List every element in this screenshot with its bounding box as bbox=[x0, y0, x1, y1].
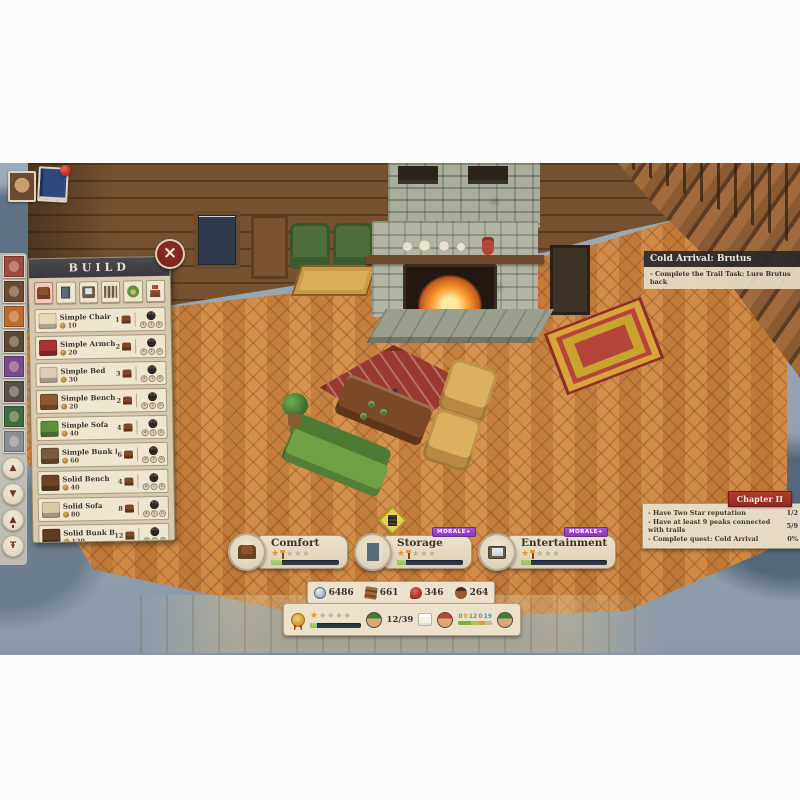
guest-face-icon bbox=[366, 612, 382, 628]
item-comfort-value: 2 bbox=[115, 343, 120, 351]
star-icon: ★ bbox=[552, 550, 559, 558]
divider bbox=[137, 474, 138, 488]
build-categories bbox=[29, 276, 170, 307]
resources-bar: 6486661346264 bbox=[307, 581, 495, 604]
star-icon: ★ bbox=[310, 612, 318, 621]
item-stats: 6410 bbox=[117, 445, 165, 463]
sidebar-button-tree[interactable]: ▲ bbox=[2, 509, 24, 531]
simple-sofa-thumbnail bbox=[40, 421, 58, 437]
star-icon: ★ bbox=[294, 550, 301, 558]
comfort-icon bbox=[238, 545, 256, 559]
status-bar: ★★★★★ 12/39 0012019 bbox=[283, 603, 521, 636]
comfort-icon bbox=[125, 531, 134, 539]
guest-counters: 0012019 bbox=[458, 614, 492, 625]
item-name: Solid Bench bbox=[62, 473, 118, 483]
resource-value: 264 bbox=[470, 588, 489, 598]
craft-dot: 0 bbox=[158, 428, 165, 435]
item-info: Solid Sofa80 bbox=[63, 500, 119, 518]
craft-badge: 410 bbox=[143, 526, 166, 543]
chimney-flue bbox=[398, 166, 438, 184]
item-comfort-value: 2 bbox=[116, 397, 121, 405]
electronics-icon bbox=[82, 286, 95, 298]
item-info: Simple Chair10 bbox=[59, 311, 115, 329]
item-stats: 2410 bbox=[116, 391, 164, 409]
item-price: 80 bbox=[63, 509, 119, 518]
planks-icon bbox=[364, 586, 378, 600]
resource-acorns: 264 bbox=[455, 587, 489, 599]
tofu-cube-icon bbox=[418, 613, 432, 626]
craft-dot: 0 bbox=[156, 347, 163, 354]
table-cup bbox=[380, 409, 387, 416]
dark-wardrobe bbox=[550, 245, 590, 315]
item-price-value: 120 bbox=[71, 537, 85, 543]
item-info: Simple Armchair20 bbox=[60, 338, 116, 356]
craft-dot: 4 bbox=[142, 429, 149, 436]
item-name: Simple Armchair bbox=[60, 338, 116, 348]
reputation-rating: ★★★★★ bbox=[310, 612, 361, 628]
craft-dot: 4 bbox=[143, 510, 150, 517]
craft-dot: 4 bbox=[142, 456, 149, 463]
craft-badge: 410 bbox=[140, 364, 163, 381]
item-price-value: 40 bbox=[70, 429, 79, 437]
craft-dot: 0 bbox=[159, 509, 166, 516]
reputation-progress bbox=[310, 623, 361, 628]
craft-dot: 4 bbox=[142, 483, 149, 490]
shield-icon bbox=[4, 406, 24, 427]
notification-dot bbox=[60, 165, 71, 176]
medal-icon bbox=[291, 613, 305, 627]
build-item-solid-sofa[interactable]: Solid Sofa808410 bbox=[38, 496, 169, 522]
resource-value: 346 bbox=[425, 588, 444, 598]
item-price-value: 80 bbox=[71, 510, 80, 518]
item-name: Solid Bunk Bed bbox=[63, 527, 114, 537]
divider bbox=[135, 366, 136, 380]
coin-icon bbox=[61, 376, 67, 382]
objective-progress: 0% bbox=[787, 535, 798, 543]
craft-dot: 1 bbox=[148, 321, 155, 328]
objective-text: - Complete quest: Cold Arrival bbox=[648, 535, 783, 543]
comfort-icon bbox=[122, 369, 131, 377]
comfort-icon bbox=[124, 450, 133, 458]
table-cup bbox=[360, 413, 367, 420]
solid-sofa-thumbnail bbox=[42, 502, 60, 518]
craft-badge: 410 bbox=[143, 499, 166, 516]
food-icon bbox=[410, 587, 422, 599]
resource-food: 346 bbox=[410, 587, 444, 599]
purple-bear-icon bbox=[4, 356, 24, 377]
hearth-stone bbox=[366, 309, 554, 343]
stat-progress bbox=[271, 560, 339, 565]
solid-bunk-bed-thumbnail bbox=[42, 529, 60, 543]
tree-icon: ▲ bbox=[10, 516, 17, 525]
bear-album-stamp[interactable] bbox=[8, 171, 36, 202]
paw-icon bbox=[149, 446, 158, 455]
chapter-objective: - Complete quest: Cold Arrival0% bbox=[648, 535, 798, 543]
item-info: Simple Bed30 bbox=[60, 365, 116, 383]
simple-bed-thumbnail bbox=[39, 367, 57, 383]
entertainment-circle bbox=[478, 533, 516, 571]
star-icon: ★ bbox=[420, 550, 427, 558]
divider bbox=[134, 312, 135, 326]
star-icon: ★ bbox=[544, 550, 551, 558]
resource-coins: 6486 bbox=[314, 587, 354, 599]
item-info: Simple Bench20 bbox=[61, 392, 117, 410]
mantel-plate bbox=[402, 241, 413, 252]
plants-icon bbox=[149, 285, 162, 297]
build-item-simple-bunk-bed[interactable]: Simple Bunk Bed606410 bbox=[37, 442, 168, 468]
sidebar-button-scroll-down[interactable]: ▼ bbox=[2, 483, 24, 505]
guest-face-red-icon bbox=[437, 612, 453, 628]
paw-icon bbox=[150, 500, 159, 509]
stat-body: Entertainment★★★★ bbox=[508, 535, 616, 568]
item-price: 20 bbox=[60, 347, 116, 356]
star-icon: ★ bbox=[335, 612, 342, 620]
sidebar-button-trail-sign[interactable]: Ŧ bbox=[2, 535, 24, 557]
coin-icon bbox=[62, 457, 68, 463]
shelf bbox=[251, 215, 288, 279]
craft-badge: 410 bbox=[141, 391, 164, 408]
item-info: Solid Bunk Bed120 bbox=[63, 527, 114, 543]
item-price: 40 bbox=[62, 428, 118, 437]
category-fence[interactable] bbox=[101, 281, 121, 303]
item-info: Simple Bunk Bed60 bbox=[62, 446, 118, 464]
mantel-plate bbox=[418, 239, 431, 252]
climber-icon bbox=[280, 550, 285, 559]
craft-dots: 410 bbox=[142, 428, 165, 435]
cabin-icon bbox=[4, 381, 24, 402]
craft-dot: 1 bbox=[149, 402, 156, 409]
star-icon: ★ bbox=[521, 550, 529, 559]
build-item-solid-bunk-bed[interactable]: Solid Bunk Bed12012410 bbox=[38, 523, 169, 543]
sidebar-stamp-purple-bear[interactable] bbox=[3, 355, 25, 378]
screenshot-frame: ▲▼▲Ŧ BUILD Simple Chair101410Simple Armc… bbox=[0, 0, 800, 800]
counter-value: 12 bbox=[469, 614, 477, 620]
item-name: Simple Chair bbox=[59, 311, 115, 321]
sidebar-stamp-red-banner[interactable] bbox=[3, 255, 25, 278]
craft-dot: 1 bbox=[148, 348, 155, 355]
star-icon: ★ bbox=[319, 612, 326, 620]
coin-icon bbox=[62, 430, 68, 436]
chapter-title: Chapter II bbox=[728, 491, 792, 507]
quest-title: Cold Arrival: Brutus bbox=[644, 251, 800, 267]
craft-dot: 0 bbox=[158, 482, 165, 489]
divider bbox=[137, 447, 138, 461]
star-icon: ★ bbox=[327, 612, 334, 620]
build-item-list: Simple Chair101410Simple Armchair202410S… bbox=[29, 305, 175, 543]
craft-dot: 4 bbox=[141, 402, 148, 409]
coin-icon bbox=[60, 349, 66, 355]
green-armchair bbox=[290, 223, 330, 269]
counter-segment bbox=[485, 621, 492, 625]
stat-progress-fill bbox=[521, 560, 531, 565]
craft-dot: 0 bbox=[157, 401, 164, 408]
stat-progress-fill bbox=[397, 560, 406, 565]
sidebar-stamp-bear-head[interactable] bbox=[3, 280, 25, 303]
star-icon: ★ bbox=[536, 550, 543, 558]
star-icon: ★ bbox=[412, 550, 419, 558]
item-price-value: 40 bbox=[70, 483, 79, 491]
divider bbox=[138, 528, 139, 542]
craft-badge: 410 bbox=[139, 310, 162, 327]
fireplace-mantel bbox=[366, 255, 544, 264]
stat-bar-storage[interactable]: Storage★★★★MORALE+ bbox=[354, 534, 472, 570]
resource-value: 661 bbox=[380, 588, 399, 598]
morale-badge: MORALE+ bbox=[432, 527, 476, 537]
item-stats: 12410 bbox=[114, 526, 166, 543]
ranger-icon bbox=[4, 331, 24, 352]
build-item-simple-chair[interactable]: Simple Chair101410 bbox=[34, 307, 165, 333]
climber-icon bbox=[406, 550, 411, 559]
resource-value: 6486 bbox=[329, 588, 354, 598]
craft-dot: 1 bbox=[150, 429, 157, 436]
item-comfort-value: 8 bbox=[118, 505, 123, 513]
item-stats: 4410 bbox=[117, 418, 165, 436]
scroll-down-icon: ▼ bbox=[10, 490, 17, 499]
quest-banner[interactable]: Cold Arrival: Brutus - Complete the Trai… bbox=[644, 251, 800, 289]
counter-value: 19 bbox=[484, 614, 492, 620]
craft-dot: 0 bbox=[157, 374, 164, 381]
entertainment-icon bbox=[488, 546, 506, 559]
sidebar-buttons: ▲▼▲Ŧ bbox=[0, 457, 27, 557]
acorns-icon bbox=[455, 587, 467, 599]
craft-badge: 410 bbox=[142, 445, 165, 462]
comfort-icon bbox=[122, 342, 131, 350]
simple-chair-thumbnail bbox=[38, 313, 56, 329]
category-seating[interactable] bbox=[34, 282, 54, 304]
coin-icon bbox=[63, 538, 69, 543]
build-item-simple-bed[interactable]: Simple Bed303410 bbox=[35, 361, 166, 387]
red-vase bbox=[482, 237, 494, 255]
coin-icon bbox=[62, 484, 68, 490]
trail-sign-icon: Ŧ bbox=[10, 542, 16, 551]
item-stats: 1410 bbox=[115, 310, 163, 328]
simple-bench-thumbnail bbox=[40, 394, 58, 410]
objective-progress: 5/9 bbox=[787, 522, 798, 530]
paw-icon bbox=[148, 419, 157, 428]
counter-segment bbox=[471, 621, 478, 625]
counter-segments bbox=[458, 621, 492, 625]
craft-dots: 410 bbox=[143, 509, 166, 516]
craft-dots: 410 bbox=[141, 401, 164, 408]
item-price-value: 10 bbox=[68, 321, 77, 329]
resource-planks: 661 bbox=[365, 587, 399, 599]
craft-badge: 410 bbox=[141, 418, 164, 435]
paw-icon bbox=[147, 365, 156, 374]
item-stats: 8410 bbox=[118, 499, 166, 517]
game-scene: ▲▼▲Ŧ BUILD Simple Chair101410Simple Armc… bbox=[0, 163, 800, 655]
sidebar-strip: ▲▼▲Ŧ bbox=[0, 253, 27, 565]
build-item-simple-armchair[interactable]: Simple Armchair202410 bbox=[35, 334, 166, 360]
craft-dots: 410 bbox=[142, 482, 165, 489]
star-icon: ★ bbox=[428, 550, 435, 558]
stat-progress bbox=[521, 560, 607, 565]
paw-icon bbox=[146, 311, 155, 320]
star-icon: ★ bbox=[286, 550, 293, 558]
category-electronics[interactable] bbox=[79, 281, 99, 303]
item-comfort-value: 1 bbox=[115, 316, 120, 324]
star-icon: ★ bbox=[302, 550, 309, 558]
bear-head-icon bbox=[4, 281, 24, 302]
comfort-icon bbox=[122, 315, 131, 323]
item-price: 30 bbox=[61, 374, 117, 383]
craft-dot: 0 bbox=[158, 455, 165, 462]
item-stats: 3410 bbox=[116, 364, 164, 382]
objective-text: - Have Two Star reputation bbox=[648, 509, 783, 517]
counter-value: 0 bbox=[478, 614, 482, 620]
sidebar-stamp-ranger[interactable] bbox=[3, 330, 25, 353]
counter-value: 0 bbox=[458, 614, 462, 620]
coin-icon bbox=[61, 403, 67, 409]
item-comfort-value: 4 bbox=[118, 478, 123, 486]
item-price-value: 20 bbox=[68, 348, 77, 356]
fire bbox=[418, 275, 482, 311]
craft-dot: 4 bbox=[140, 321, 147, 328]
sidebar-stamp-cabin[interactable] bbox=[3, 380, 25, 403]
craft-dot: 4 bbox=[140, 348, 147, 355]
morale-badge: MORALE+ bbox=[564, 527, 608, 537]
build-item-simple-bench[interactable]: Simple Bench202410 bbox=[36, 388, 167, 414]
guest-face-icon bbox=[497, 612, 513, 628]
category-decor-head[interactable] bbox=[123, 280, 143, 302]
comfort-icon bbox=[124, 477, 133, 485]
coin-icon bbox=[60, 322, 66, 328]
item-price-value: 20 bbox=[69, 402, 78, 410]
craft-dots: 410 bbox=[142, 455, 165, 462]
craft-dots: 410 bbox=[140, 320, 163, 327]
bear-icon bbox=[10, 173, 34, 200]
chapter-objective: - Have Two Star reputation1/2 bbox=[648, 509, 798, 517]
paw-icon bbox=[150, 527, 159, 536]
storage-icon bbox=[367, 543, 379, 561]
divider bbox=[138, 501, 139, 515]
potted-plant bbox=[280, 393, 310, 429]
stat-body: Storage★★★★ bbox=[384, 535, 472, 568]
paw-icon bbox=[147, 338, 156, 347]
item-comfort-value: 3 bbox=[116, 370, 121, 378]
simple-bunk-bed-thumbnail bbox=[41, 448, 59, 464]
sidebar-stamp-watchtower[interactable] bbox=[3, 430, 25, 453]
craft-dots: 410 bbox=[141, 374, 164, 381]
item-price: 20 bbox=[61, 401, 117, 410]
craft-dots: 410 bbox=[140, 347, 163, 354]
sidebar-button-scroll-up[interactable]: ▲ bbox=[2, 457, 24, 479]
stat-label: Comfort bbox=[271, 538, 339, 549]
craft-dot: 1 bbox=[151, 510, 158, 517]
solid-bench-thumbnail bbox=[41, 475, 59, 491]
counter-segment bbox=[458, 621, 471, 625]
stat-label: Entertainment bbox=[521, 538, 607, 549]
craft-dot: 1 bbox=[149, 375, 156, 382]
comfort-circle bbox=[228, 533, 266, 571]
item-info: Solid Bench40 bbox=[62, 473, 118, 491]
build-item-simple-sofa[interactable]: Simple Sofa404410 bbox=[36, 415, 167, 441]
watchtower-icon bbox=[4, 431, 24, 452]
item-comfort-value: 4 bbox=[117, 424, 122, 432]
stat-stars: ★★★★ bbox=[271, 550, 339, 559]
item-comfort-value: 6 bbox=[117, 451, 122, 459]
build-panel-title: BUILD bbox=[29, 257, 170, 278]
climber-icon bbox=[530, 550, 535, 559]
stat-body: Comfort★★★★ bbox=[258, 535, 348, 568]
storage-circle bbox=[354, 533, 392, 571]
build-item-solid-bench[interactable]: Solid Bench404410 bbox=[37, 469, 168, 495]
stat-progress-fill bbox=[271, 560, 282, 565]
red-banner-icon bbox=[4, 256, 24, 277]
item-price: 60 bbox=[62, 455, 118, 464]
chapter-objective: - Have at least 9 peaks connected with t… bbox=[648, 518, 798, 534]
objective-text: - Have at least 9 peaks connected with t… bbox=[648, 518, 783, 534]
sidebar-stamp-hammer[interactable] bbox=[3, 305, 25, 328]
stat-bar-entertainment[interactable]: Entertainment★★★★MORALE+ bbox=[478, 534, 604, 570]
craft-dot: 1 bbox=[150, 483, 157, 490]
item-comfort-value: 12 bbox=[114, 532, 123, 540]
seating-icon bbox=[37, 287, 50, 299]
craft-dot: 4 bbox=[141, 375, 148, 382]
paw-icon bbox=[148, 392, 157, 401]
craft-dot: 0 bbox=[156, 320, 163, 327]
stat-bar-comfort[interactable]: Comfort★★★★ bbox=[228, 534, 348, 570]
item-stats: 2410 bbox=[115, 337, 163, 355]
scroll-up-icon: ▲ bbox=[10, 464, 17, 473]
item-price-value: 60 bbox=[70, 456, 79, 464]
item-price-value: 30 bbox=[69, 375, 78, 383]
fence-icon bbox=[104, 286, 117, 298]
guests-count: 12/39 bbox=[387, 615, 414, 625]
mantel-plate bbox=[456, 242, 466, 252]
category-storage[interactable] bbox=[56, 281, 76, 303]
reputation-progress-fill bbox=[310, 623, 317, 628]
table-cup bbox=[368, 401, 375, 408]
comfort-icon bbox=[123, 423, 132, 431]
window bbox=[194, 211, 240, 269]
craft-dot: 1 bbox=[150, 456, 157, 463]
yellow-rug bbox=[291, 265, 377, 296]
plant-pot bbox=[288, 414, 302, 427]
item-stats: 4410 bbox=[118, 472, 166, 490]
objective-progress: 1/2 bbox=[787, 509, 798, 517]
item-price: 40 bbox=[62, 482, 118, 491]
craft-badge: 410 bbox=[140, 337, 163, 354]
quest-objective: - Complete the Trail Task: Lure Brutus b… bbox=[644, 267, 800, 289]
comfort-icon bbox=[123, 396, 132, 404]
counter-value: 0 bbox=[464, 614, 468, 620]
chapter-objectives: - Have Two Star reputation1/2- Have at l… bbox=[642, 503, 800, 549]
counter-values: 0012019 bbox=[458, 614, 492, 620]
decor-head-icon bbox=[127, 285, 139, 297]
craft-badge: 410 bbox=[142, 472, 165, 489]
category-plants[interactable] bbox=[146, 280, 166, 302]
stat-stars: ★★★★ bbox=[521, 550, 607, 559]
comfort-icon bbox=[125, 504, 134, 512]
item-price: 10 bbox=[60, 320, 116, 329]
chimney-flue bbox=[468, 166, 508, 184]
simple-armchair-thumbnail bbox=[39, 340, 57, 356]
item-info: Simple Sofa40 bbox=[61, 419, 117, 437]
stat-label: Storage bbox=[397, 538, 463, 549]
divider bbox=[136, 420, 137, 434]
coins-icon bbox=[314, 587, 326, 599]
item-name: Simple Bench bbox=[61, 392, 117, 402]
coin-icon bbox=[63, 511, 69, 517]
reputation-stars: ★★★★★ bbox=[310, 612, 361, 621]
star-icon: ★ bbox=[344, 612, 351, 620]
close-button[interactable]: × bbox=[155, 239, 185, 269]
divider bbox=[135, 339, 136, 353]
divider bbox=[136, 393, 137, 407]
sidebar-stamp-shield[interactable] bbox=[3, 405, 25, 428]
item-name: Simple Bunk Bed bbox=[62, 446, 118, 456]
sidebar-stamps bbox=[0, 255, 27, 453]
